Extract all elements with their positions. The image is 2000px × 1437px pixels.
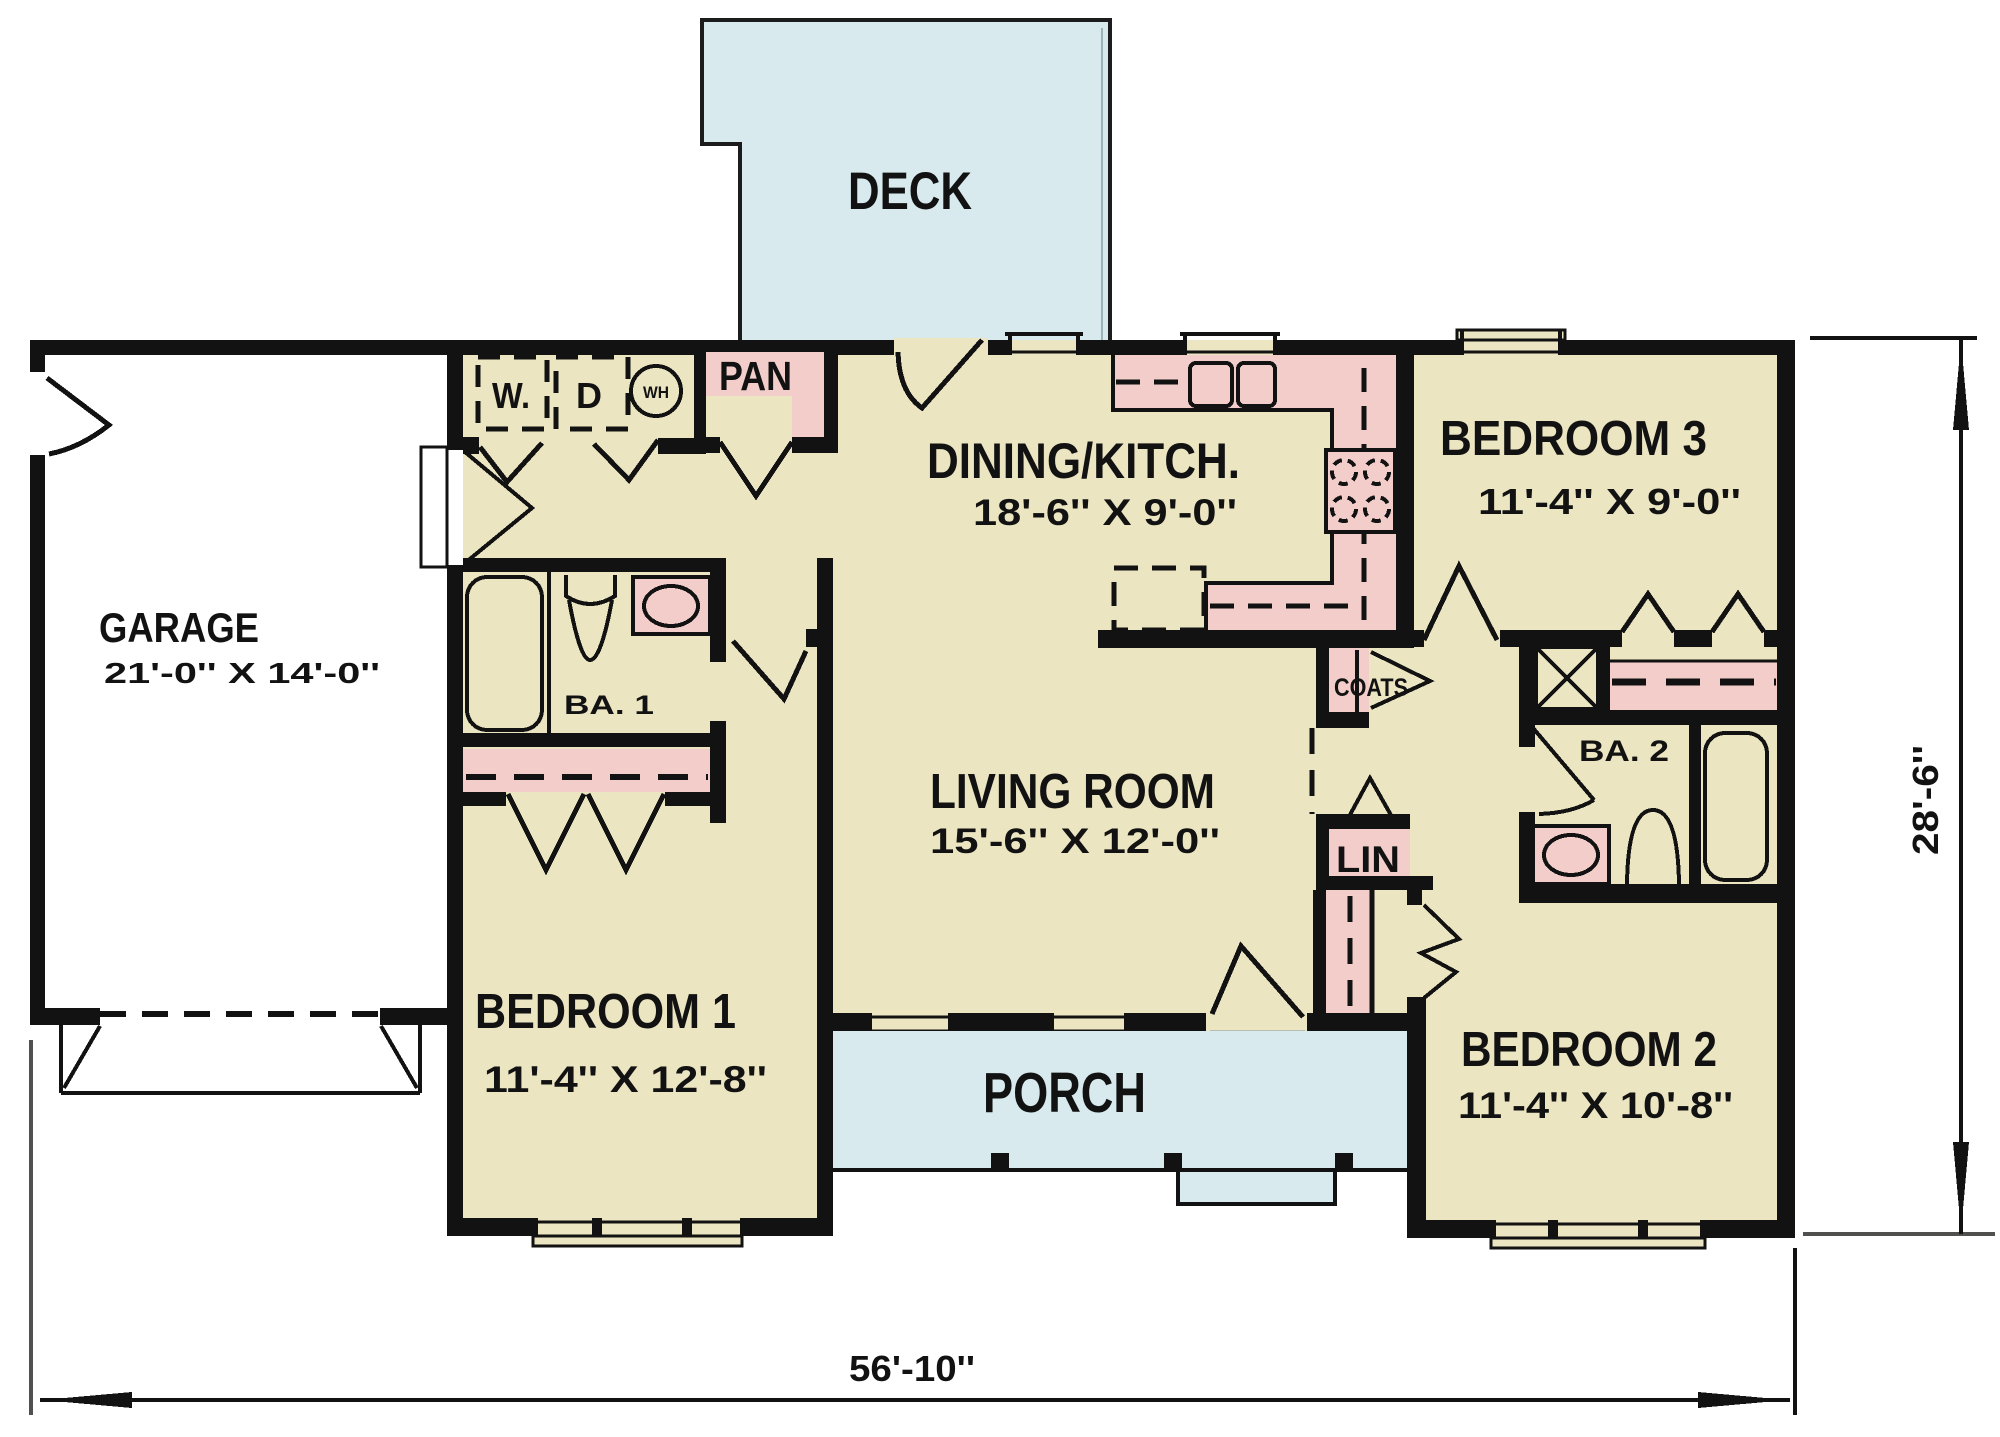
- svg-text:BEDROOM 2: BEDROOM 2: [1461, 1023, 1717, 1077]
- svg-text:21'-0'' X 14'-0'': 21'-0'' X 14'-0'': [104, 658, 380, 690]
- svg-text:COATS: COATS: [1334, 674, 1408, 702]
- svg-text:GARAGE: GARAGE: [99, 604, 259, 651]
- svg-text:15'-6'' X 12'-0'': 15'-6'' X 12'-0'': [930, 822, 1220, 861]
- svg-text:18'-6'' X 9'-0'': 18'-6'' X 9'-0'': [973, 492, 1237, 533]
- svg-text:11'-4'' X 9'-0'': 11'-4'' X 9'-0'': [1478, 481, 1741, 522]
- svg-text:LIN: LIN: [1336, 839, 1400, 880]
- svg-text:PAN: PAN: [719, 353, 792, 399]
- svg-text:W.: W.: [492, 375, 530, 416]
- svg-text:D: D: [576, 375, 602, 416]
- svg-text:BA. 2: BA. 2: [1579, 735, 1669, 768]
- svg-text:WH: WH: [643, 383, 669, 402]
- svg-text:DECK: DECK: [848, 162, 972, 221]
- svg-text:BEDROOM 1: BEDROOM 1: [475, 985, 736, 1039]
- svg-text:56'-10'': 56'-10'': [849, 1348, 975, 1389]
- svg-text:11'-4'' X 10'-8'': 11'-4'' X 10'-8'': [1458, 1085, 1733, 1126]
- svg-text:11'-4'' X 12'-8'': 11'-4'' X 12'-8'': [484, 1059, 767, 1100]
- svg-text:LIVING ROOM: LIVING ROOM: [930, 765, 1215, 819]
- svg-text:PORCH: PORCH: [983, 1061, 1146, 1125]
- svg-text:28'-6'': 28'-6'': [1905, 745, 1946, 855]
- svg-text:BA. 1: BA. 1: [564, 690, 654, 720]
- svg-text:DINING/KITCH.: DINING/KITCH.: [927, 433, 1240, 489]
- svg-text:BEDROOM 3: BEDROOM 3: [1440, 412, 1707, 466]
